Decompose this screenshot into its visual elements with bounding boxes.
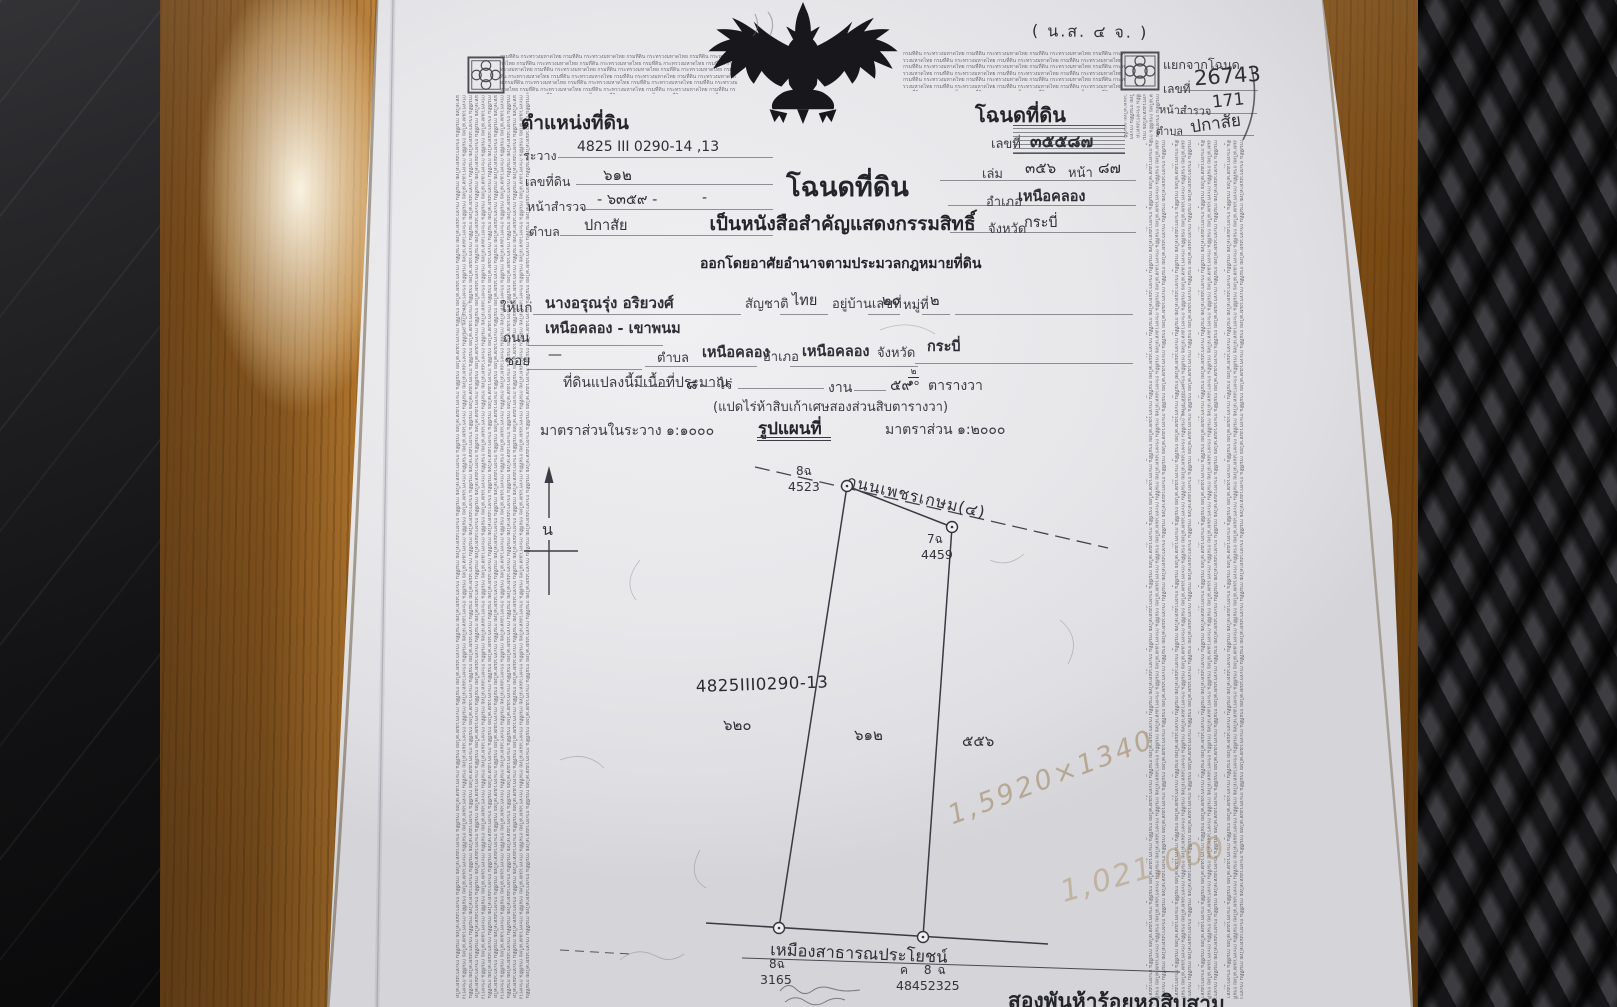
paper-left-edge-shadow bbox=[328, 0, 377, 1007]
faint-top-scribble bbox=[753, 12, 773, 36]
photo-artifacts-overlay bbox=[0, 0, 1617, 1007]
stray-hair-marks bbox=[461, 300, 1185, 960]
paper-crease bbox=[377, 0, 393, 1007]
paper-right-edge-shadow bbox=[1323, 0, 1412, 1007]
photo-scene: กรมที่ดิน กระทรวงมหาดไทย กรมที่ดิน กระทร… bbox=[0, 0, 1617, 1007]
pen-bracket-stroke bbox=[1243, 66, 1254, 140]
